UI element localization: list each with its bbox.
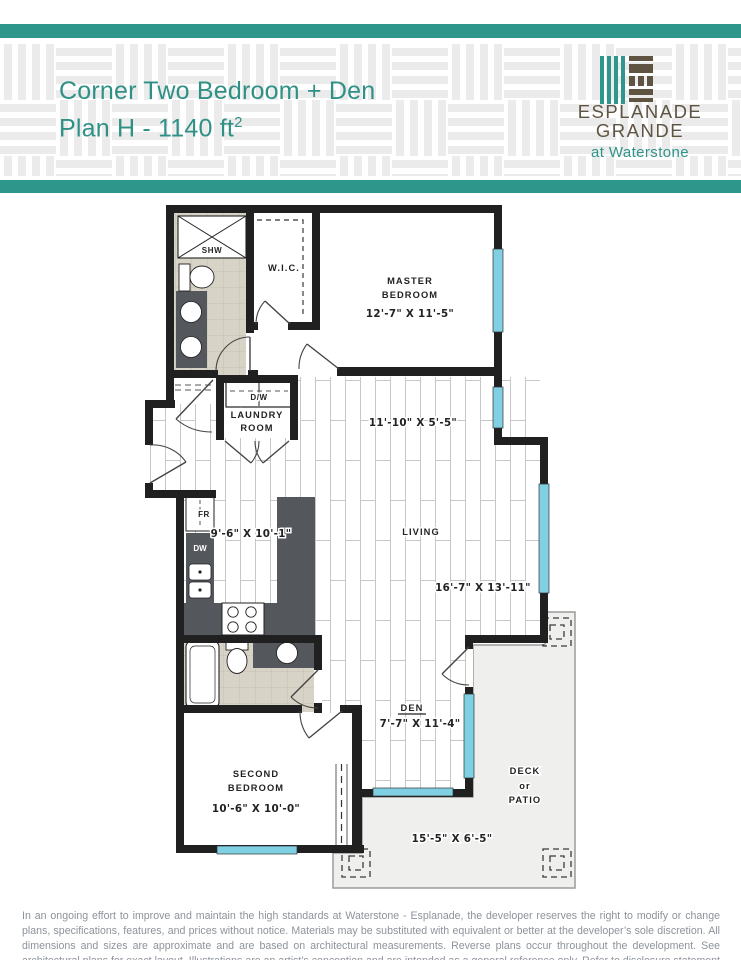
drain: [198, 588, 201, 591]
floorplan-drawing: SHW W.I.C. MASTER BEDROOM 12'-7" X 11'-5…: [0, 0, 741, 960]
living-window: [539, 484, 549, 593]
washer-dryer-label: D/W: [250, 393, 267, 402]
deck-label-2: or: [519, 781, 531, 791]
hall-window: [493, 387, 503, 428]
master-sink-1: [181, 302, 202, 323]
kitchen-island: [277, 497, 315, 603]
laundry-label-1: LAUNDRY: [231, 410, 284, 420]
wic-door-leaf: [265, 301, 290, 324]
toilet2-bowl: [227, 649, 247, 674]
fridge-label: FR: [198, 510, 210, 519]
den-dim: 7'-7" X 11'-4": [380, 718, 461, 730]
burner: [228, 622, 238, 632]
master-dim: 12'-7" X 11'-5": [366, 308, 454, 320]
den-bottom-window: [373, 788, 453, 796]
master-door-leaf: [307, 344, 339, 369]
deck-label-1: DECK: [510, 766, 541, 776]
master-sink-2: [181, 337, 202, 358]
floorplan-page: Corner Two Bedroom + Den Plan H - 1140 f…: [0, 0, 741, 960]
shower-label: SHW: [202, 246, 222, 255]
drain: [198, 570, 201, 573]
den-side-window: [464, 694, 474, 778]
second-bedroom-label-1: SECOND: [233, 769, 279, 779]
laundry-label-2: ROOM: [240, 423, 273, 433]
wic-door-arc: [256, 301, 265, 324]
burner: [246, 622, 256, 632]
deck-label-3: PATIO: [509, 795, 542, 805]
burner: [246, 607, 256, 617]
master-label-2: BEDROOM: [382, 290, 438, 300]
stove: [222, 603, 264, 635]
master-door-arc: [299, 344, 307, 369]
hall-dim: 11'-10" X 5'-5": [369, 417, 457, 429]
second-bedroom-window: [217, 846, 297, 854]
disclaimer-text: In an ongoing effort to improve and main…: [22, 909, 720, 960]
burner: [228, 607, 238, 617]
dishwasher-label: DW: [193, 544, 207, 553]
bathtub-inner: [190, 646, 215, 703]
living-dim: 16'-7" X 13'-11": [435, 582, 531, 594]
master-toilet-bowl: [190, 266, 214, 288]
wic-label: W.I.C.: [268, 263, 300, 273]
kitchen-dim: 9'-6" X 10'-1": [211, 528, 292, 540]
second-bedroom-dim: 10'-6" X 10'-0": [212, 803, 300, 815]
master-window: [493, 249, 503, 332]
living-label: LIVING: [402, 527, 440, 537]
den-label: DEN: [401, 703, 424, 713]
second-bath-sink: [277, 643, 298, 664]
second-bedroom-label-2: BEDROOM: [228, 783, 284, 793]
second-bedroom-floor: [184, 713, 352, 845]
master-label-1: MASTER: [387, 276, 433, 286]
master-toilet-tank: [179, 264, 190, 291]
deck-dim: 15'-5" X 6'-5": [412, 833, 493, 845]
